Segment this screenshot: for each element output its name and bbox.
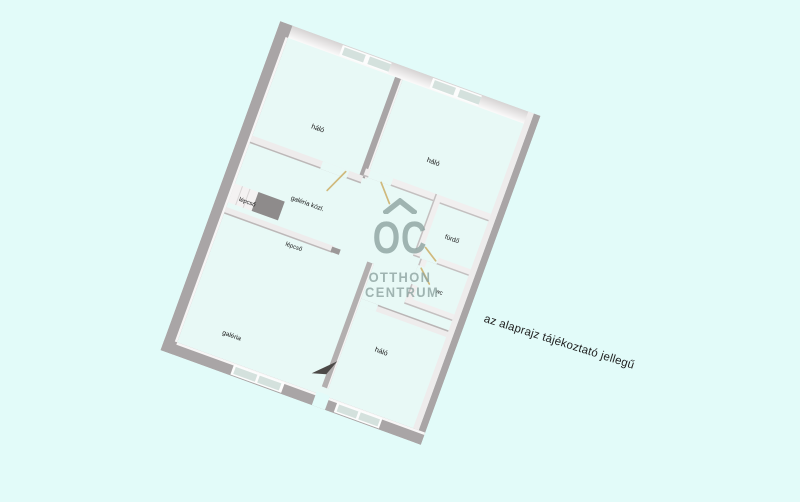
disclaimer-text: az alaprajz tájékoztató jellegű bbox=[482, 313, 635, 372]
floorplan-drawing: háló háló galéria közl. lépcső lépcső fü… bbox=[160, 21, 540, 445]
floorplan: háló háló galéria közl. lépcső lépcső fü… bbox=[160, 21, 540, 445]
floorplan-canvas: háló háló galéria közl. lépcső lépcső fü… bbox=[0, 0, 800, 502]
floor-slab bbox=[160, 21, 540, 445]
